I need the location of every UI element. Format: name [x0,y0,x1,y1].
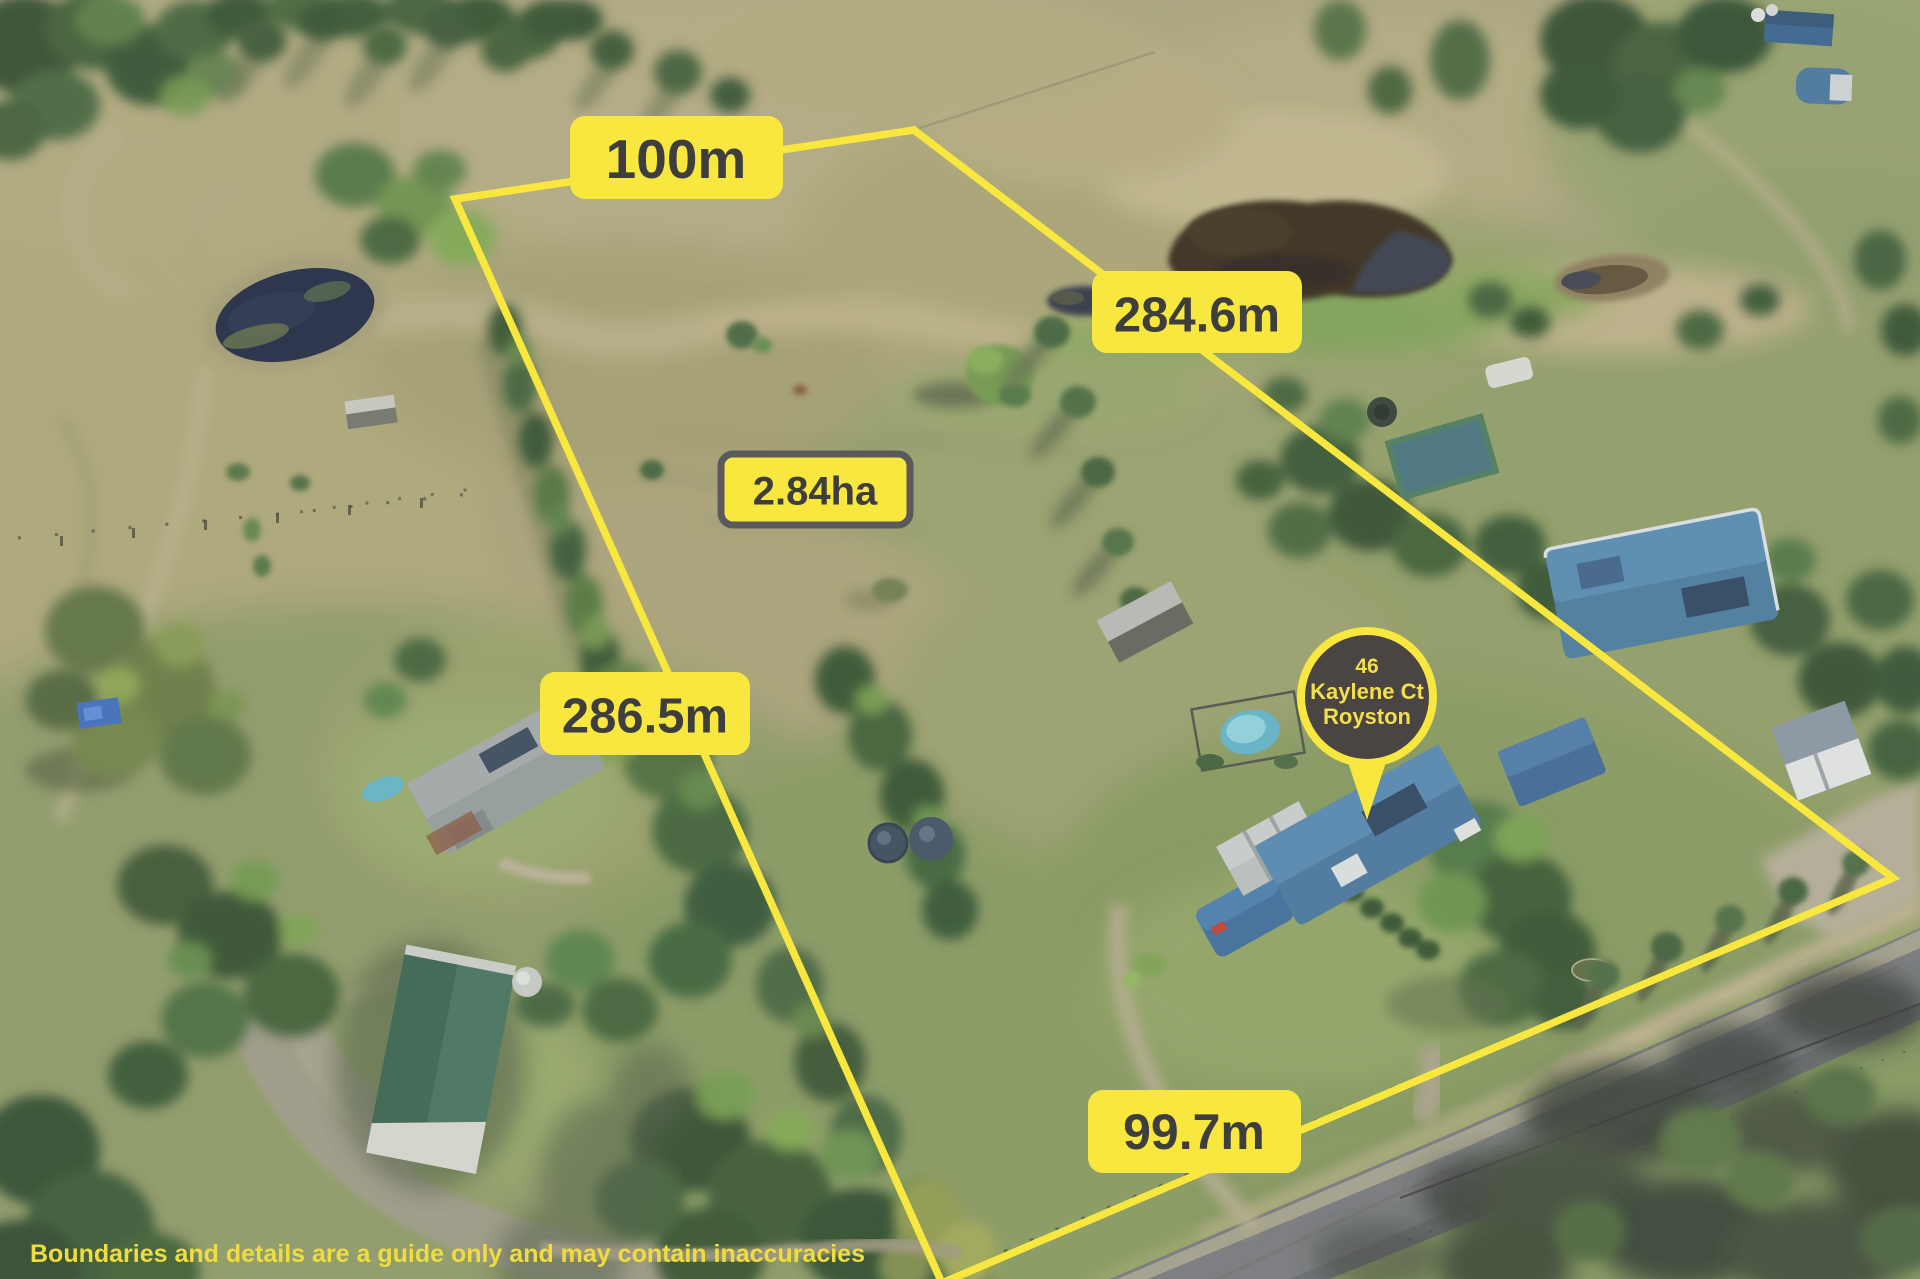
svg-text:99.7m: 99.7m [1123,1104,1265,1160]
svg-text:Kaylene Ct: Kaylene Ct [1310,679,1424,704]
svg-text:Royston: Royston [1323,704,1411,729]
svg-text:284.6m: 284.6m [1114,289,1280,343]
svg-text:2.84ha: 2.84ha [753,469,878,513]
svg-text:Boundaries and details are a g: Boundaries and details are a guide only … [30,1240,865,1268]
svg-text:46: 46 [1355,655,1378,678]
svg-text:100m: 100m [606,128,747,190]
svg-text:286.5m: 286.5m [562,690,728,744]
